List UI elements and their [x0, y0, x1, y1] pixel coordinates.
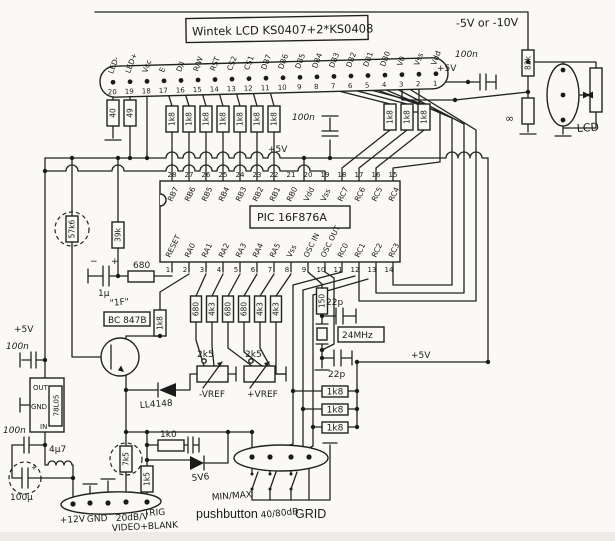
backlight-resistors: 40 49	[107, 100, 136, 126]
cap-polarity-plus: +	[111, 257, 119, 267]
conn-pin-label: +12V	[60, 515, 86, 526]
pic-pin-number: 6	[251, 266, 256, 274]
pic-pin-number: 3	[200, 266, 204, 274]
pic-pin-number: 22	[270, 171, 279, 179]
pic-chip-notch	[160, 194, 166, 206]
resistor-value: 1k8	[327, 424, 344, 434]
lcd-pin-number: 15	[193, 86, 202, 94]
pic-pin-number: 7	[268, 266, 272, 274]
video-trig-input: 7k5 1k5 1k0 5V6	[110, 430, 210, 492]
zener-symbol	[190, 456, 204, 470]
reg-in-label: IN	[40, 423, 47, 431]
reset-network: 57k6 39k − + 1µ 680	[55, 212, 154, 299]
lcd-pin-number: 16	[176, 86, 186, 94]
cap-value: 1µ	[98, 289, 110, 299]
pic-pin-number: 15	[389, 171, 398, 179]
bulk-cap: + 100µ	[9, 462, 41, 503]
cap-value: 22p	[328, 370, 345, 380]
cap-value: 100n	[3, 426, 26, 436]
resistor-value: 680	[240, 302, 249, 317]
series-resistors-1k8: 1k8 1k8 1k8 1k8 1k8 1k8 1k8	[166, 106, 280, 132]
input-connector: +12V GND 20dB/V TRIG VIDEO+BLANK	[60, 490, 180, 534]
resistor-value: 680	[133, 261, 150, 271]
resistor-value: 1k8	[185, 112, 194, 126]
resistor-value: 40	[109, 108, 118, 118]
paper-edge-shadow	[0, 532, 615, 541]
cap-value: 100µ	[10, 493, 33, 503]
resistor-value: 4k3	[208, 302, 217, 316]
cap-value: 100n	[455, 50, 478, 60]
resistor-value: 1k8	[270, 112, 279, 126]
lcd-pin-number: 13	[227, 85, 236, 93]
pic-pin-number: 13	[368, 266, 377, 274]
pic-pin-number: 18	[338, 171, 347, 179]
pic-pin-number: 11	[334, 266, 343, 274]
pic-pin-number: 23	[253, 171, 262, 179]
pic-pin-number: 2	[183, 266, 187, 274]
resistor-value: 4k3	[272, 302, 281, 316]
conn-pin-label: GND	[87, 514, 108, 525]
plus5v-label: +5V	[437, 64, 457, 74]
cap-polarity-plus: +	[31, 464, 37, 472]
plus5v-label: +5V	[268, 145, 288, 155]
lcd-pin-number: 8	[314, 83, 319, 91]
vref-neg-label: -VREF	[199, 390, 225, 400]
btn-minmax-label: MIN/MAX	[212, 490, 253, 503]
oscillator: 150 24MHz 22p 22p	[317, 288, 385, 380]
pic-pin-number: 9	[302, 266, 306, 274]
lcd-pin-number: 11	[261, 84, 270, 92]
pic-top-pin-numbers: 28 27 26 25 24 23 22 21 20 19 18 17 16 1…	[168, 171, 398, 179]
resistor-value: 680	[192, 302, 201, 317]
cap-polarity-minus: −	[90, 257, 98, 267]
btn-grid-label: GRID	[295, 507, 326, 521]
pic-pin-number: 4	[217, 266, 222, 274]
resistor-value: 49	[126, 108, 135, 118]
pushbutton-connector	[234, 445, 328, 491]
cap-value: 22p	[326, 298, 343, 308]
pot-track	[590, 68, 602, 112]
resistor-value: 1k8	[420, 110, 429, 124]
zener-value: 5V6	[191, 472, 210, 484]
neg-supply-label: -5V or -10V	[456, 16, 519, 30]
resistor-value: 1k0	[160, 430, 177, 440]
lcd-pot-label: LCD	[576, 120, 599, 135]
conn-pin-label: TRIG	[143, 508, 166, 519]
resistor-value: 1k5	[143, 472, 152, 486]
schematic-canvas: 20 19 18 17 16 15 14 13 12 11 10 9 8 7 6…	[0, 0, 615, 541]
resistor-value: 1k8	[202, 112, 211, 126]
pic-pin-number: 26	[202, 171, 211, 179]
lcd-pin-number: 7	[331, 82, 336, 90]
reg-gnd-label: GND	[31, 403, 47, 411]
resistor-value: 1k8	[236, 112, 245, 126]
resistor-value: 1k8	[327, 388, 344, 398]
pic-chip-name: PIC 16F876A	[257, 211, 327, 224]
resistor-value: 1k8	[386, 110, 395, 124]
lcd-pin-number: 9	[297, 83, 302, 91]
vref-pos-label: +VREF	[247, 390, 278, 400]
pic-pin-number: 1	[166, 266, 170, 274]
lcd-pin-number: 1	[433, 80, 438, 88]
pic-pin-number: 25	[219, 171, 228, 179]
resistor-value: 1k8	[253, 112, 262, 126]
trimmer-value: 2k5	[197, 350, 214, 360]
pullup-resistors: 1k8 1k8 1k8	[322, 386, 348, 434]
pic-pin-number: 5	[234, 266, 238, 274]
lcd-pin-number: 14	[210, 85, 220, 93]
transistor-name: BC 847B	[108, 316, 147, 326]
diode-name: LL4148	[140, 399, 174, 411]
schematic-page: 20 19 18 17 16 15 14 13 12 11 10 9 8 7 6…	[0, 0, 615, 541]
btn-pushbutton-label: pushbutton	[196, 507, 258, 521]
pic-bottom-pin-numbers: 1 2 3 4 5 6 7 8 9 10 11 12 13 14	[166, 266, 394, 274]
lcd-pin-number: 5	[365, 82, 370, 90]
pic-pin-number: 17	[355, 171, 364, 179]
bus-resistors-1k8: 1k8 1k8 1k8	[384, 104, 430, 130]
pic-pin-number: 14	[385, 266, 394, 274]
lcd-pin-number: 4	[382, 81, 387, 89]
resistor-value: 7k5	[122, 452, 131, 466]
pic-pin-number: 27	[185, 171, 194, 179]
plus5v-label: +5V	[411, 351, 431, 361]
pic-pin-number: 20	[304, 171, 313, 179]
pic-chip: PIC 16F876A 28 27 26 25 24 23 22 21 20 1…	[160, 171, 401, 274]
trimmer-value: 2k5	[245, 350, 262, 360]
resistor-value: 39k	[114, 227, 123, 242]
diode-symbol	[159, 383, 176, 397]
lcd-connector: 20 19 18 17 16 15 14 13 12 11 10 9 8 7 6…	[99, 43, 448, 97]
inductor-value: 4µ7	[49, 445, 66, 455]
reg-name: 78L05	[53, 395, 61, 417]
note-1f: "1F"	[109, 297, 129, 309]
pic-pin-number: 28	[168, 171, 177, 179]
pic-pin-number: 10	[317, 266, 326, 274]
cap-value: 100n	[292, 113, 315, 123]
reg-out-label: OUT	[33, 384, 49, 392]
resistor-value: 1k8	[327, 406, 344, 416]
lcd-title: Wintek LCD KS0407+2*KS0408	[186, 15, 374, 42]
resistor-value: 4k3	[256, 302, 265, 316]
transistor-stage: "1F" BC 847B 1k8 LL4148	[101, 297, 176, 411]
lcd-pin-number: 19	[125, 88, 134, 96]
resistor-value: 680	[224, 302, 233, 317]
lcd-pin-number: 18	[142, 87, 151, 95]
resistor-value: 1k8	[403, 110, 412, 124]
btn-40-80-label: 40/80dB	[260, 507, 299, 521]
crystal-value: 24MHz	[342, 331, 373, 341]
lcd-pin-number: 10	[278, 84, 287, 92]
cap-value: 100n	[6, 342, 29, 352]
crystal-symbol	[317, 328, 327, 340]
adc-divider-row: 680 4k3 680 680 4k3 4k3	[191, 296, 282, 322]
resistor-value: 1k8	[156, 316, 165, 330]
resistor-value: 57k6	[68, 219, 77, 238]
lcd-pin-number: 20	[108, 88, 117, 96]
pic-pin-number: 12	[351, 266, 360, 274]
lcd-pin-number: 2	[416, 80, 421, 88]
resistor-value: 1k8	[219, 112, 228, 126]
pic-pin-number: 19	[321, 171, 330, 179]
pic-pin-number: 21	[287, 171, 296, 179]
regulator: OUT GND IN 78L05	[30, 378, 64, 432]
resistor-value: 1k8	[168, 112, 177, 126]
lcd-pin-number: 6	[348, 82, 353, 90]
video-blank-label: VIDEO+BLANK	[112, 520, 180, 534]
lcd-pin-number: 17	[159, 87, 168, 95]
resistor-value-infinity: ∞	[505, 112, 514, 125]
lcd-pin-number: 12	[244, 85, 253, 93]
pic-pin-number: 24	[236, 171, 245, 179]
plus5v-label: +5V	[14, 325, 34, 335]
lcd-pin-number: 3	[399, 81, 404, 89]
pic-pin-number: 8	[285, 266, 289, 274]
pic-pin-number: 16	[372, 171, 381, 179]
